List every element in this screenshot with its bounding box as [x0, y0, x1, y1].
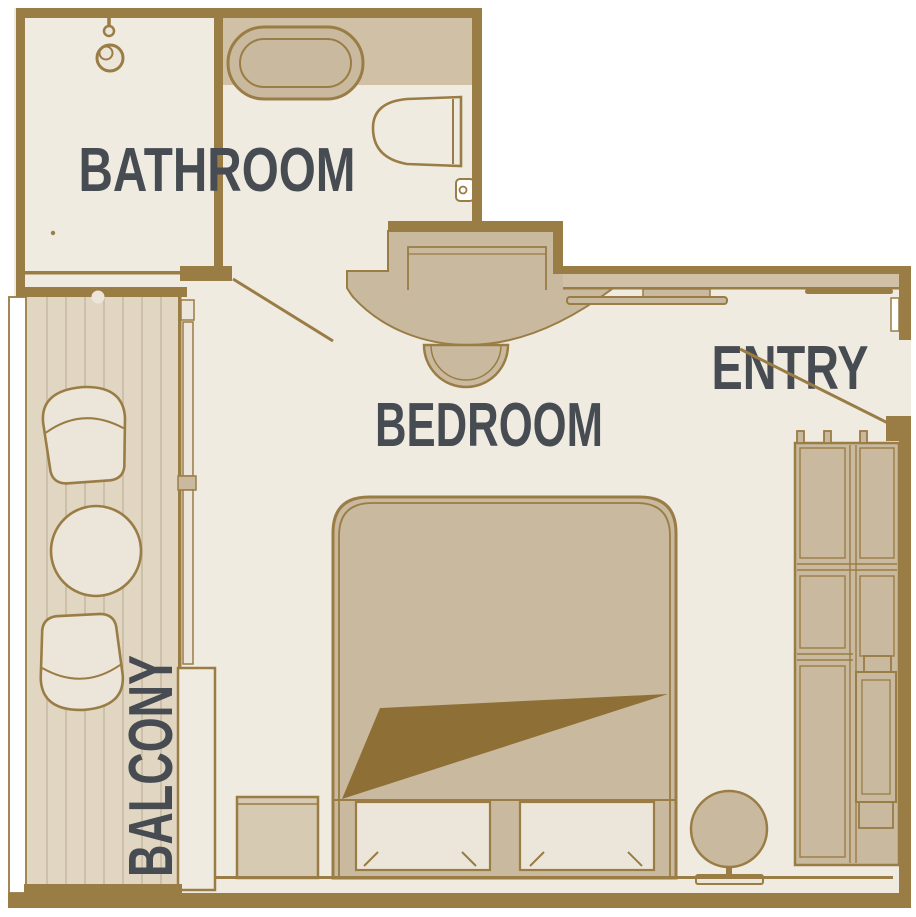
- wall-bottom: [8, 893, 911, 908]
- wall-bathroom-right: [472, 8, 482, 222]
- balcony-chair-lower: [38, 613, 125, 712]
- wall-left-bathroom: [16, 18, 25, 297]
- toilet: [373, 97, 461, 166]
- entry-label: ENTRY: [712, 334, 869, 403]
- wall-top: [16, 8, 482, 18]
- nightstand: [237, 797, 318, 878]
- bathtub: [228, 27, 363, 99]
- entry-wall-niche: [891, 298, 899, 331]
- wardrobe: [795, 431, 899, 865]
- floor-plan: BATHROOM BEDROOM ENTRY BALCONY: [0, 0, 916, 917]
- wall-notch: [92, 291, 105, 304]
- wall-right-lower: [899, 440, 911, 896]
- double-bed: [333, 497, 676, 878]
- wall-right-upper: [899, 266, 911, 340]
- bedroom-label: BEDROOM: [375, 391, 603, 460]
- wall-balcony-bottom: [24, 884, 182, 894]
- wall-vanity-top: [388, 221, 563, 231]
- wall-vanity-right: [554, 221, 563, 272]
- wall-ledge-fill: [563, 274, 899, 287]
- entry-door-jamb: [886, 416, 911, 441]
- balcony-railing: [9, 297, 26, 893]
- baseboard-line: [215, 876, 893, 879]
- wall-entry-top: [554, 266, 911, 274]
- balcony-label: BALCONY: [117, 655, 186, 877]
- wall-bathroom-door-stub: [180, 266, 232, 281]
- shower-drain-dot: [51, 231, 55, 235]
- ironing-board: [856, 656, 896, 828]
- coat-rail: [805, 289, 893, 294]
- pillow-right: [520, 802, 654, 870]
- balcony-table: [51, 506, 141, 596]
- bathroom-label: BATHROOM: [79, 136, 356, 205]
- luggage-shelf: [567, 297, 727, 304]
- sliding-window: [178, 297, 196, 668]
- floor-plan-page: BATHROOM BEDROOM ENTRY BALCONY: [0, 0, 916, 917]
- balcony-chair-upper: [41, 384, 129, 484]
- shelf-box: [643, 289, 710, 297]
